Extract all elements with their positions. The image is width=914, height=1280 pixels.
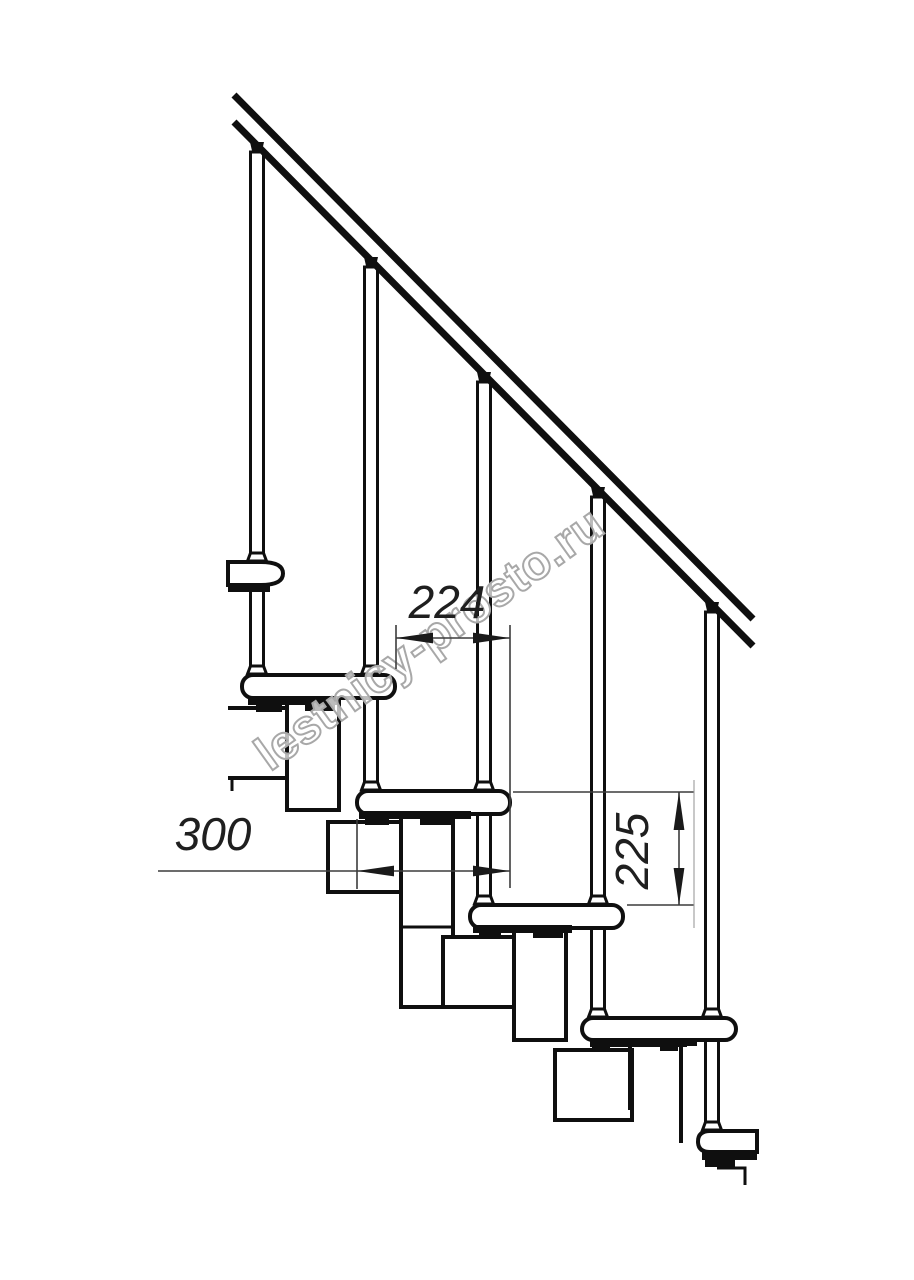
plate-0 <box>228 584 270 592</box>
plate-5 <box>702 1152 757 1160</box>
collar <box>475 896 494 904</box>
plate-1-tab-a <box>256 705 282 712</box>
baluster-5 <box>706 612 719 1132</box>
plate-4 <box>590 1040 687 1047</box>
collar <box>362 782 381 790</box>
module-box-2 <box>443 937 520 1007</box>
tread-5-cropped <box>698 1131 757 1152</box>
collar <box>589 896 608 904</box>
plate-4-tab-b <box>660 1046 678 1051</box>
dimension-value-225: 225 <box>606 812 658 890</box>
handrail-upper-edge <box>234 95 753 619</box>
treads <box>228 562 757 1152</box>
drawing-page: lestnicy-prosto.ru 224 300 225 <box>0 0 914 1280</box>
module-tube-3 <box>514 930 566 1040</box>
collar <box>248 666 267 674</box>
tread-3 <box>470 905 623 928</box>
tread-4 <box>582 1018 736 1040</box>
module-box-3 <box>555 1050 632 1120</box>
plate-2-tab-b <box>420 817 453 825</box>
baluster-3 <box>478 382 491 906</box>
staircase-side-elevation: lestnicy-prosto.ru 224 300 225 <box>0 0 914 1280</box>
collar <box>248 553 267 561</box>
plate-3-tab-a <box>479 932 501 939</box>
collar <box>703 1009 722 1017</box>
arrowhead-down <box>674 868 685 905</box>
plate-2 <box>359 811 471 819</box>
collar <box>475 782 494 790</box>
plate-4-tab-a <box>592 1046 610 1052</box>
collar <box>589 1009 608 1017</box>
plate-2-tab-a <box>365 818 389 825</box>
tread-2 <box>357 791 510 814</box>
arrowhead-up <box>674 792 685 830</box>
plate-3-tab-b <box>533 931 563 938</box>
baluster-4 <box>592 497 605 1020</box>
dimension-value-224: 224 <box>408 576 486 628</box>
module-box-1 <box>328 822 406 892</box>
module-box-4-corner-fragment <box>717 1168 745 1185</box>
collar <box>703 1122 722 1130</box>
baluster-1 <box>251 152 264 676</box>
plate-5-tab <box>705 1159 735 1167</box>
plate-4-stub <box>683 1039 697 1046</box>
dimension-value-300: 300 <box>175 808 252 860</box>
tread-0-cropped <box>228 562 283 585</box>
